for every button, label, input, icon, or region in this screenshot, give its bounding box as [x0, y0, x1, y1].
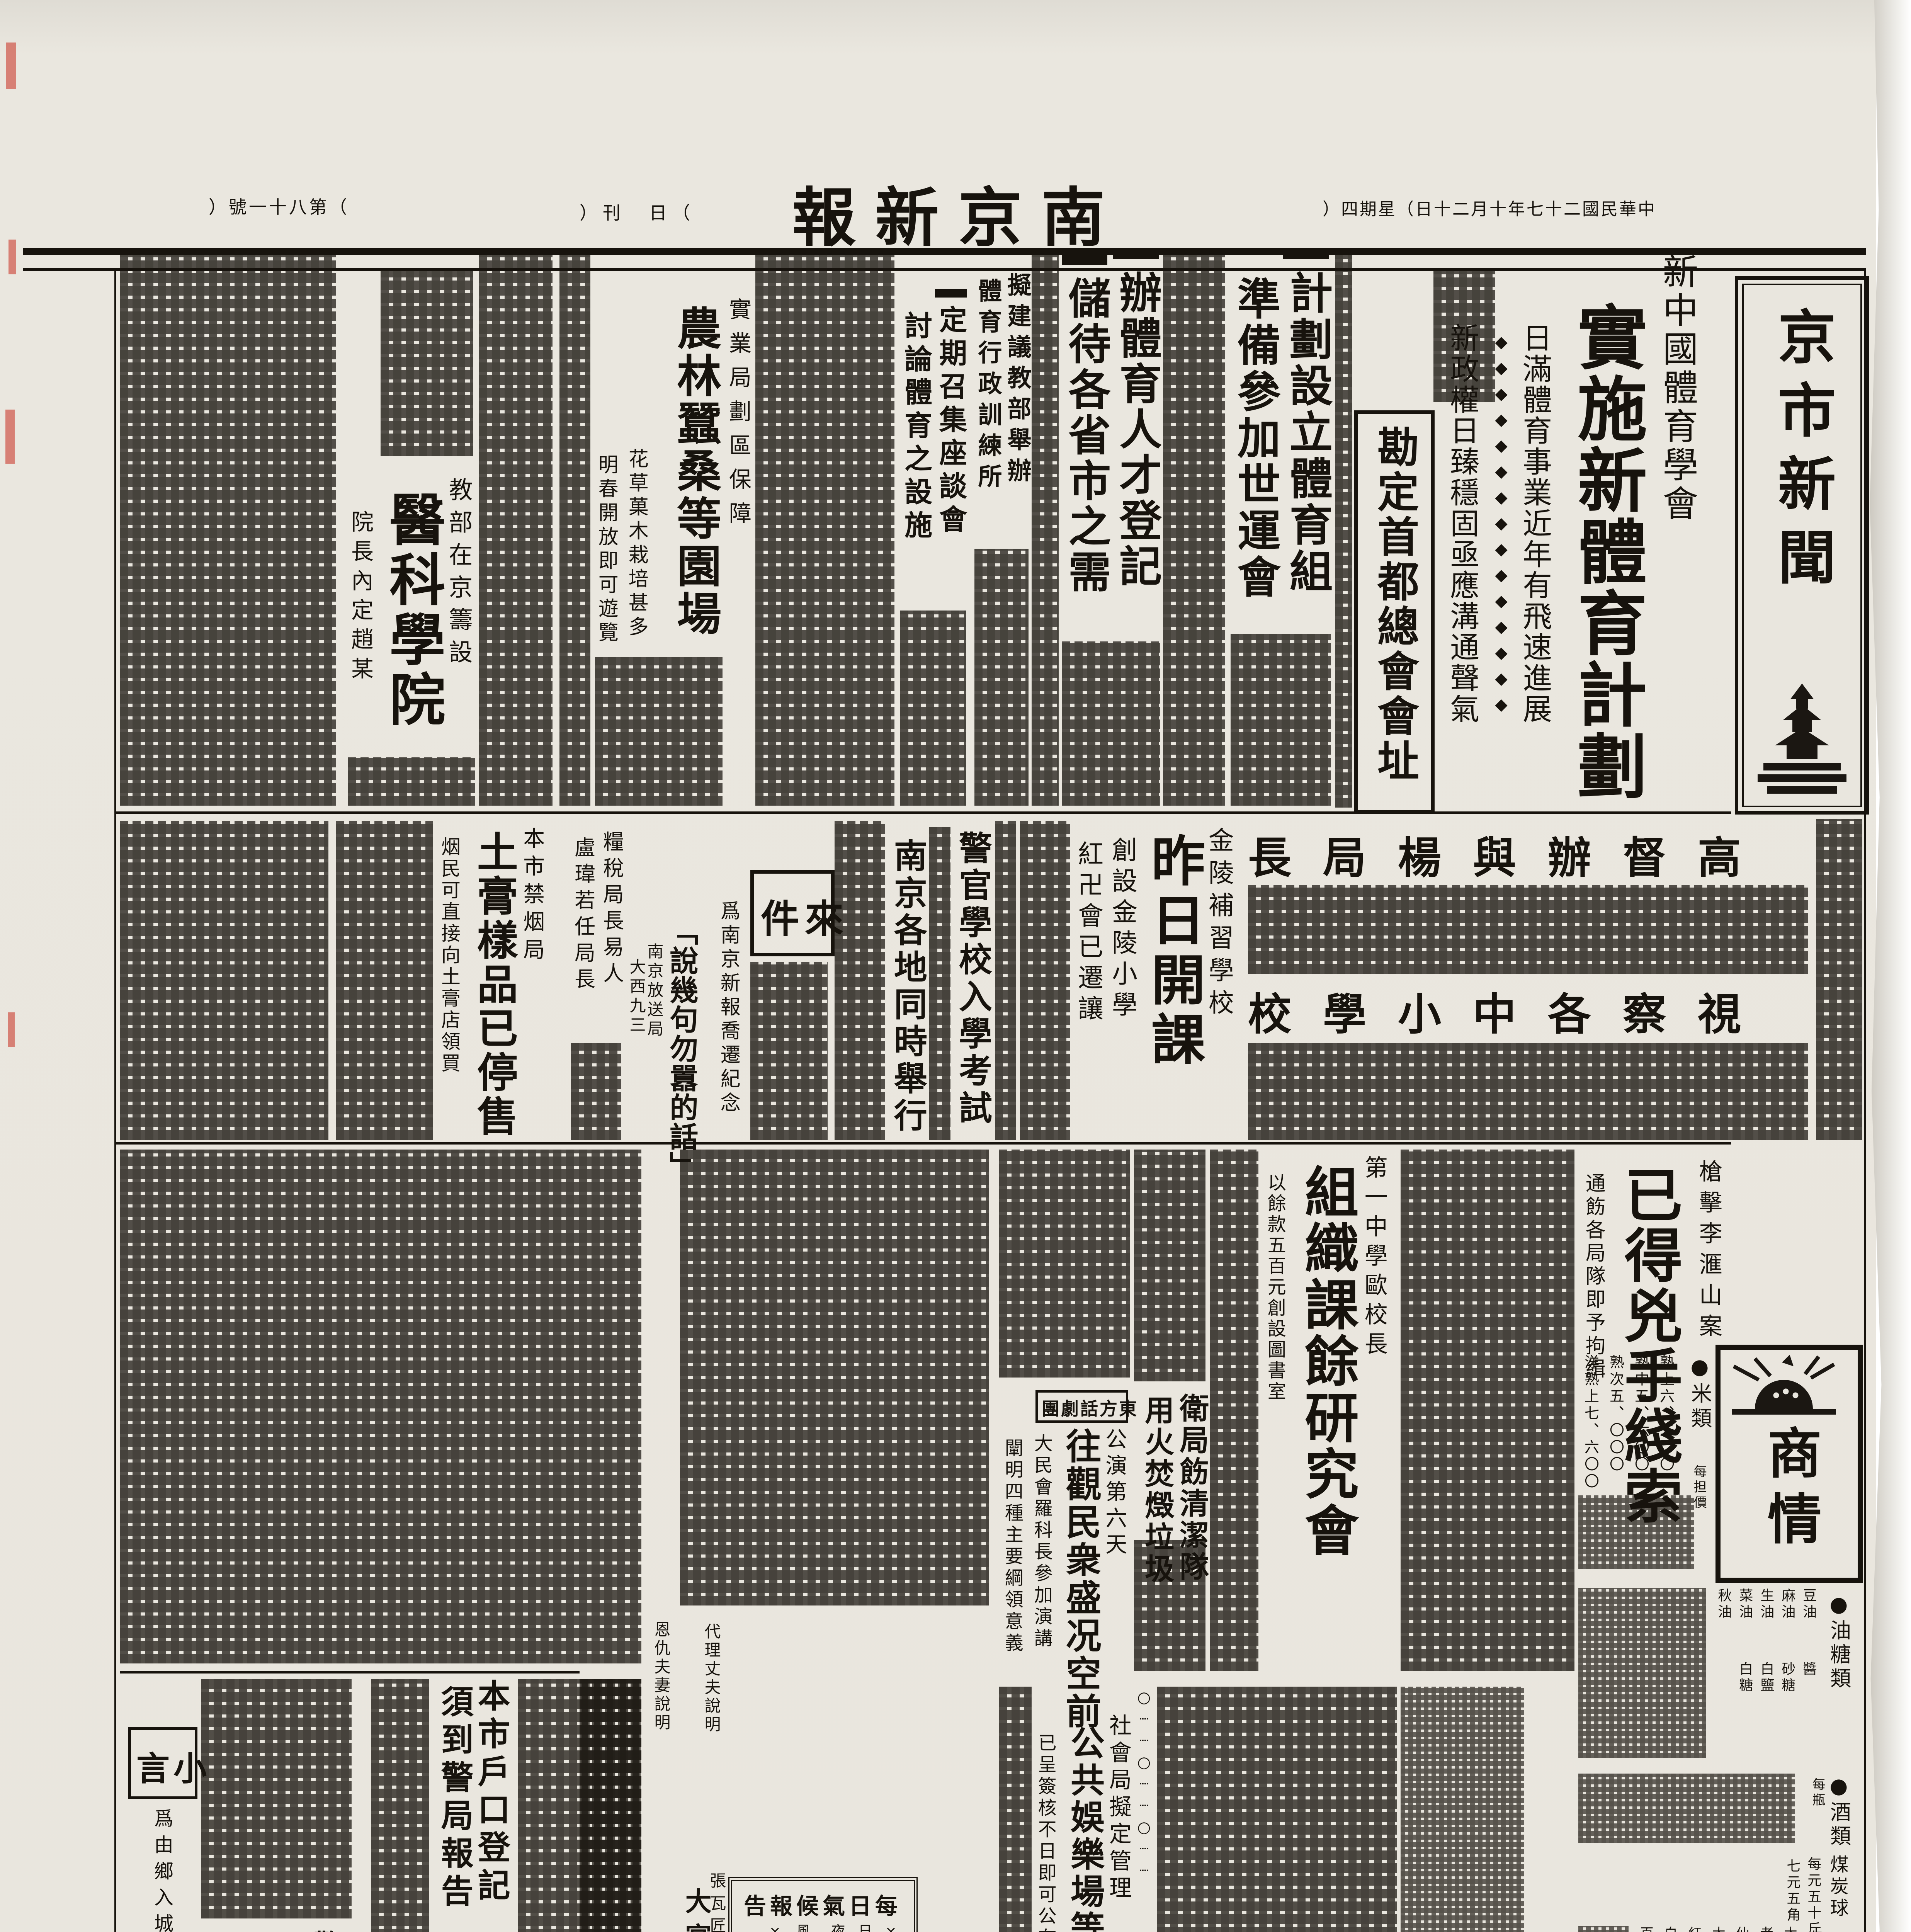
body-text-block: [1062, 641, 1160, 806]
body-text-block: [995, 821, 1016, 1140]
letters-dedication: 爲南京新報喬遷紀念: [717, 900, 740, 1116]
date-line: ）四期星（日十二月十年七十二國民華中: [1267, 195, 1712, 220]
article-headline: 本市戶口登記: [473, 1679, 510, 1906]
market-rice-row: 熟次五、〇〇〇: [1607, 1354, 1624, 1473]
article-kicker: 實業局劃區保障: [726, 298, 751, 536]
market-banner-box: 商情: [1715, 1345, 1863, 1583]
theater-note: 恩仇夫妻說明: [652, 1621, 670, 1732]
body-text-block: [371, 1679, 429, 1932]
body-text-block: [755, 253, 894, 806]
body-text-block: [120, 255, 336, 806]
market-oil-item: 麻油: [1779, 1588, 1795, 1621]
band-rule: [116, 1142, 1731, 1145]
article-deck: 計劃設立體育組: [1283, 270, 1331, 595]
market-oil-item: 白鹽: [1758, 1662, 1773, 1694]
market-coal-price: 七元五角: [1784, 1859, 1800, 1923]
market-cig-brand: 百花牌: [1638, 1926, 1653, 1932]
letters-box-label: 件來: [761, 888, 849, 944]
article-deck: 準備參加世運會: [1231, 276, 1279, 601]
article-headline: 土膏樣品已停售: [471, 831, 517, 1139]
deck-bar: [935, 289, 967, 298]
body-text-block: [559, 255, 590, 806]
article-headline: 須到警局報告: [437, 1685, 473, 1912]
market-oil-item: 白糖: [1737, 1662, 1752, 1694]
deck-bar: [1062, 255, 1107, 265]
article-kicker: 金陵補習學校: [1205, 827, 1233, 1022]
article-kicker: 本市禁烟局: [520, 827, 544, 966]
article-headline: 醫科學院: [381, 491, 443, 730]
market-cig-unit: 每盒五十包: [1808, 1930, 1822, 1932]
red-margin-mark: [6, 43, 16, 89]
market-oil-item: 秋油: [1715, 1588, 1731, 1621]
market-wine-unit: 每瓶: [1810, 1777, 1825, 1808]
weather-line: 夜間——: [829, 1923, 844, 1932]
article-kicker: 第一中學歐校長: [1361, 1155, 1387, 1361]
article-deck: 辦體育人才登記: [1113, 270, 1160, 590]
market-cig-brand: 紅金龍: [1686, 1926, 1701, 1932]
body-text-block: [1335, 255, 1352, 808]
article-subhead: 花草菓木栽培甚多: [625, 448, 648, 640]
article-kicker: 社會局擬定管理: [1106, 1714, 1131, 1903]
body-text-block: [595, 657, 723, 806]
body-text-block: [1248, 1043, 1808, 1140]
market-cig-brand: 大英牌: [1782, 1926, 1797, 1932]
market-rice-row: 熟上六、二〇〇: [1658, 1354, 1674, 1473]
body-text-block: [1433, 270, 1495, 402]
market-cig-label: ●香煙: [1827, 1926, 1850, 1932]
body-text-block: [201, 1679, 352, 1918]
article-kicker: 新中國體育學會: [1658, 253, 1697, 524]
article-subhead: 創設金陵小學: [1108, 837, 1137, 1022]
article-deck: 定期召集座談會: [935, 305, 966, 538]
pagoda-illustration: [1754, 682, 1850, 798]
weather-title: 告報候氣日每: [744, 1888, 901, 1920]
banner-headline-row1: 長局楊與辦督高: [1248, 823, 1808, 886]
article-subhead: 大民會羅科長參加演講: [1031, 1434, 1052, 1650]
body-text-block: [1210, 1150, 1258, 1671]
market-rice-label: ●米類: [1688, 1354, 1711, 1432]
market-numbers: [1578, 1926, 1629, 1932]
newspaper-page: 報新京南 ）四期星（日十二月十年七十二國民華中 ）刊 日（ ）號一十八第（ 京市…: [0, 0, 1911, 1932]
band-rule: [116, 811, 1731, 814]
weather-line: 風向西風，速力: [794, 1923, 809, 1932]
deck-bar: [1113, 249, 1159, 259]
market-banner: 商情: [1759, 1425, 1820, 1556]
body-text-block: [336, 821, 433, 1140]
body-text-block: [1231, 634, 1331, 806]
tax-headline: 盧瑋若任局長: [571, 837, 594, 994]
letters-box: 件來: [750, 870, 835, 956]
market-coal-unit: 每元五十斤: [1805, 1857, 1821, 1932]
market-cig-brand: 仙女牌: [1734, 1926, 1749, 1932]
article-deck: 公演第六天: [1102, 1428, 1126, 1559]
xiaoyan-title: 爲由鄉入城者請求: [151, 1808, 173, 1932]
body-text-block: [929, 827, 950, 1140]
body-text-block: [120, 821, 328, 1140]
boxed-subhead-frame: 勘定首都總會會址: [1354, 410, 1435, 813]
article-deck: 討論體育之設施: [900, 311, 932, 544]
section-banner-title: 京市新聞: [1769, 307, 1834, 600]
body-text-block: [1157, 1687, 1397, 1932]
market-numbers: [1578, 1774, 1795, 1843]
frame-rule: [1864, 270, 1866, 1932]
xiaoyan-label: 言小: [136, 1742, 211, 1790]
issue-label: ）號一十八第（: [209, 193, 349, 219]
banquet-headline: 大宴佳賓: [681, 1888, 710, 1932]
article-headline: 公共娛樂場等規則: [1066, 1725, 1104, 1932]
body-text-block: [580, 1679, 641, 1932]
body-text-block: [120, 1150, 641, 1663]
market-cig-brand: 大聯珠: [1710, 1926, 1725, 1932]
article-subhead: 通飭各局隊即予拘緝: [1582, 1173, 1605, 1381]
body-text-block: [479, 255, 553, 806]
article-subhead: 明春開放即可遊覽: [595, 454, 617, 646]
article-headline: 警廳飭各局隊: [310, 1930, 340, 1932]
theater-note: 代理丈夫說明: [702, 1623, 721, 1734]
article-headline: 農林蠶桑等園場: [670, 305, 720, 638]
article-subhead: 以餘款五百元創設圖書室: [1264, 1173, 1285, 1402]
article-headline: 實施新體育計劃: [1567, 301, 1645, 802]
body-text-block: [999, 1150, 1130, 1378]
letters-byline: 南京放送局: [645, 943, 663, 1039]
article-kicker: 教部在京籌設: [445, 477, 472, 672]
market-cig-brand: 老刀牌: [1758, 1926, 1773, 1932]
market-coal-label: 煤炭球: [1827, 1855, 1848, 1920]
market-oil-item: 豆油: [1800, 1588, 1816, 1621]
body-text-block: [750, 962, 828, 1140]
market-cig-brand: 白金龍: [1662, 1926, 1677, 1932]
body-text-block: [1020, 821, 1070, 1140]
body-text-block: [680, 1150, 989, 1605]
article-deck: 擬建議教部舉辦: [1004, 272, 1030, 489]
frame-rule: [114, 270, 116, 1932]
section-banner-box: 京市新聞: [1735, 276, 1869, 815]
market-numbers: [1578, 1495, 1694, 1569]
masthead-title: 報新京南: [792, 166, 1086, 259]
weather-line: 日間——: [856, 1923, 871, 1932]
letters-byline: 大西九三: [627, 958, 646, 1036]
article-headline: 警官學校入學考試: [954, 831, 991, 1128]
market-rice-row: 熟中五、六〇〇: [1632, 1354, 1649, 1473]
market-oil-item: 醬: [1800, 1662, 1816, 1678]
body-text-block: [1816, 819, 1862, 1140]
body-text-block: [974, 549, 1029, 806]
letters-title: 「說幾句勿囂的話」: [665, 917, 697, 1181]
boxed-subhead: 勘定首都總會會址: [1371, 425, 1418, 784]
article-subhead: 闡明四種主要綱領意義: [1001, 1438, 1022, 1655]
article-subhead: 日滿體育事業近年有飛速進展: [1518, 323, 1551, 724]
red-margin-mark: [8, 1012, 15, 1047]
theater-box-label: 團劇話方東: [1042, 1395, 1138, 1420]
market-oil-item: 生油: [1758, 1588, 1773, 1621]
article-subhead: 烟民可直接向土膏店領買: [439, 837, 460, 1075]
market-numbers: [1578, 1588, 1706, 1758]
article-headline: 往觀民衆盛况空前: [1061, 1428, 1100, 1731]
market-rice-row: 洋熟上七、六〇〇: [1582, 1354, 1599, 1490]
weather-box: 告報候氣日每 ×月×日 日間—— 夜間—— 風向西風，速力 ××: [728, 1877, 918, 1932]
body-text-block: [1401, 1150, 1574, 1671]
article-deck: 儲待各省市之需: [1062, 276, 1109, 595]
body-text-block: [1163, 253, 1225, 806]
body-text-block: [835, 821, 885, 1140]
body-text-block: [999, 1687, 1032, 1932]
band-rule: [120, 1671, 580, 1673]
daily-label: ）刊 日（: [580, 199, 695, 224]
dots-ornament: ○┈┈○┈┈○┈┈: [1135, 1689, 1153, 1883]
article-subhead: 已呈簽核不日即可公布: [1035, 1733, 1056, 1932]
deck-bar: [1283, 249, 1329, 259]
market-oil-label: ●油糖類: [1827, 1592, 1850, 1691]
banner-headline-row2: 校學小中各察視: [1248, 980, 1808, 1042]
article-headline: 昨日開課: [1143, 833, 1204, 1071]
weather-line: ×月×日: [883, 1923, 898, 1932]
theater-box: 團劇話方東: [1035, 1390, 1128, 1423]
red-margin-mark: [5, 410, 15, 464]
body-text-block: [1032, 253, 1059, 806]
article-subhead: 院長內定趙某: [348, 510, 373, 686]
body-text-block: [900, 611, 966, 806]
body-text-block: [571, 1043, 621, 1140]
body-text-block: [381, 270, 473, 456]
article-subhead: 紅卍會已遷讓: [1074, 840, 1103, 1026]
body-text-block: [1401, 1687, 1524, 1932]
market-oil-item: 菜油: [1737, 1588, 1752, 1621]
body-text-block: [348, 757, 475, 806]
weather-line: ××: [767, 1923, 782, 1932]
body-text-block: [1134, 1540, 1205, 1671]
body-text-block: [1134, 1150, 1205, 1381]
article-deck: 體育行政訓練所: [974, 278, 1001, 495]
red-margin-mark: [9, 240, 16, 274]
market-wine-label: ●酒類: [1827, 1774, 1850, 1849]
article-headline: 組織課餘研究會: [1296, 1164, 1357, 1559]
body-text-block: [1248, 885, 1808, 974]
xiaoyan-box: 言小: [128, 1727, 197, 1799]
tax-headline: 糧稅局長易人: [600, 831, 623, 988]
article-headline: 南京各地同時舉行: [889, 838, 926, 1135]
rooster-sun-illustration: [1726, 1353, 1842, 1418]
market-oil-item: 砂糖: [1779, 1662, 1795, 1694]
article-kicker: 槍擊李滙山案: [1695, 1159, 1721, 1345]
